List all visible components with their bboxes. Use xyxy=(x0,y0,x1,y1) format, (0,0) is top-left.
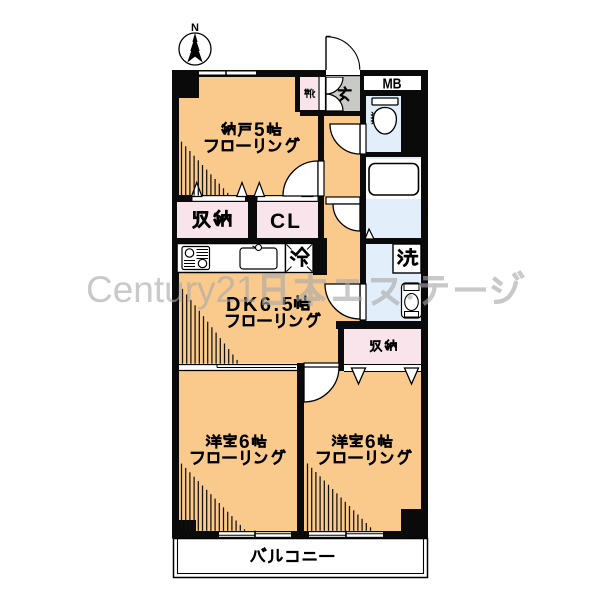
svg-text:6: 6 xyxy=(365,432,376,453)
svg-text:Century21: Century21 xyxy=(86,269,257,310)
svg-text:6: 6 xyxy=(239,432,250,453)
svg-text:N: N xyxy=(191,22,199,34)
svg-text:CL: CL xyxy=(270,210,302,233)
svg-text:MB: MB xyxy=(382,75,401,91)
svg-text:5: 5 xyxy=(254,120,265,141)
